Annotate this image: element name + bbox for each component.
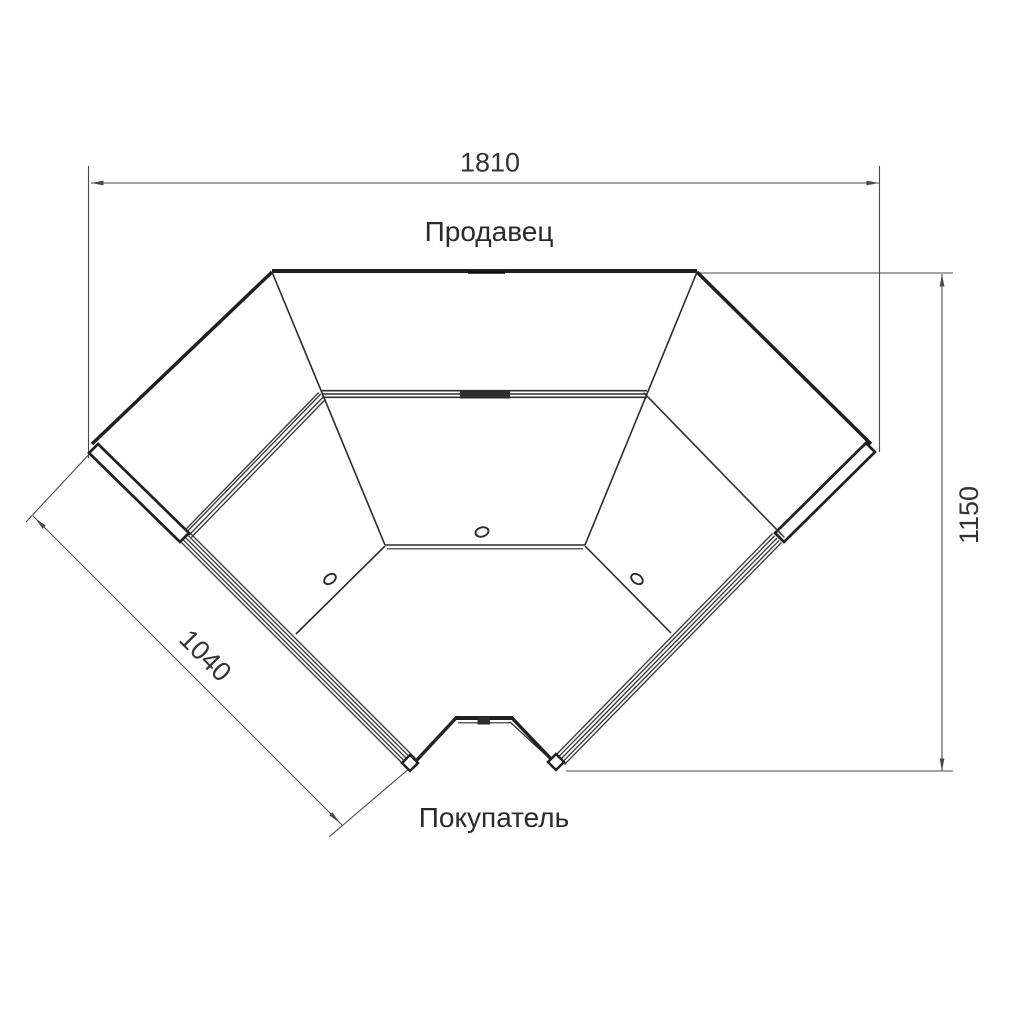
seller-label: Продавец bbox=[425, 216, 554, 247]
shelf-band-right bbox=[644, 393, 785, 538]
extension-line-lower bbox=[329, 767, 411, 837]
dimension-width-value: 1810 bbox=[460, 148, 520, 178]
glass-line bbox=[558, 536, 775, 758]
shelf-band-left bbox=[185, 393, 326, 538]
notch-right-slant bbox=[512, 718, 553, 761]
arrowhead-right-icon bbox=[867, 181, 880, 186]
dimension-width: 1810 bbox=[89, 148, 880, 459]
glass-line bbox=[565, 543, 782, 765]
glass-line bbox=[191, 534, 416, 759]
hole-right bbox=[629, 572, 645, 587]
shelf-line bbox=[650, 399, 784, 537]
front-glass-right bbox=[556, 534, 782, 765]
hole-left bbox=[322, 572, 338, 587]
arrowhead-lowerright-icon bbox=[329, 812, 340, 823]
well-right-slant bbox=[585, 272, 697, 545]
notch-left-slant-inner bbox=[420, 716, 458, 757]
arrowhead-up-icon bbox=[940, 274, 945, 287]
extension-line-upper bbox=[26, 448, 95, 522]
drawing-sheet: 1810 1150 1040 Продавец Покупатель bbox=[0, 0, 1024, 1024]
glass-line bbox=[556, 534, 773, 756]
counter-outline bbox=[89, 271, 875, 542]
shelf-line bbox=[189, 397, 323, 535]
notch-right-slant-inner bbox=[510, 722, 549, 758]
buyer-label: Покупатель bbox=[419, 802, 569, 833]
glass-line bbox=[188, 536, 413, 761]
partition-right bbox=[585, 546, 671, 633]
end-panel-right bbox=[775, 443, 875, 542]
hole-center bbox=[474, 526, 489, 538]
dimension-line-side bbox=[33, 516, 342, 825]
end-panel-left bbox=[89, 444, 189, 542]
arrowhead-upperleft-icon bbox=[35, 518, 46, 529]
notch-latch bbox=[478, 717, 491, 725]
shelf-line bbox=[187, 394, 321, 532]
well-left-slant bbox=[272, 272, 385, 545]
shelf-line bbox=[185, 393, 319, 531]
glass-line bbox=[560, 538, 777, 760]
back-counter-edge bbox=[322, 390, 647, 399]
partition-left bbox=[296, 546, 385, 634]
dimension-side-value: 1040 bbox=[174, 624, 238, 688]
technical-drawing: 1810 1150 1040 Продавец Покупатель bbox=[0, 0, 1024, 1024]
shelf-line bbox=[191, 399, 325, 537]
corner-cap-left bbox=[402, 755, 418, 771]
counter-left-back-edge bbox=[92, 272, 272, 444]
dimension-height-value: 1150 bbox=[954, 486, 984, 544]
glass-line bbox=[562, 540, 779, 762]
front-notch bbox=[402, 716, 564, 771]
edge-seam bbox=[460, 390, 510, 399]
counter-right-back-edge bbox=[697, 272, 871, 444]
arrowhead-down-icon bbox=[940, 759, 945, 772]
arrowhead-left-icon bbox=[91, 181, 104, 186]
dimension-side: 1040 bbox=[26, 448, 411, 837]
